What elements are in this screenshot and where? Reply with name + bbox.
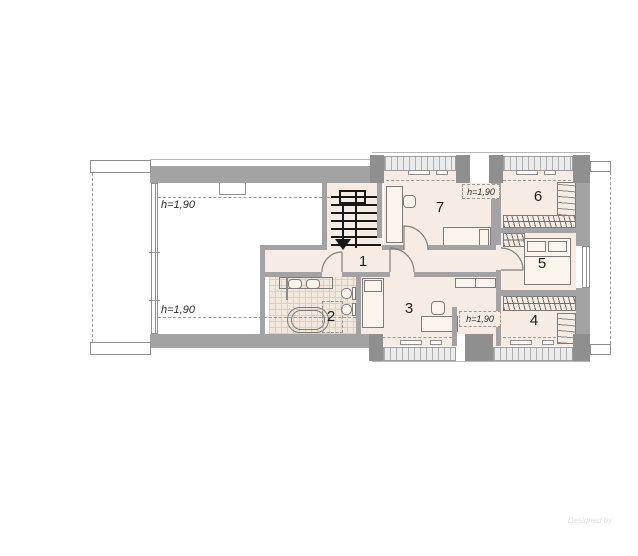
- dormer-recess-bottom: [456, 334, 465, 361]
- clothes-rail-room-5: [503, 233, 525, 247]
- chair-room-7: [403, 195, 416, 208]
- pillow-room-7: [479, 229, 489, 246]
- height-mark-dormer-bottom: h=1,90: [459, 311, 501, 327]
- wall-top-left-wing: [150, 166, 372, 183]
- wall-hallway-top-left: [260, 245, 327, 250]
- height-line-open-top: [158, 197, 322, 198]
- roof-edge-top-right: [372, 152, 590, 153]
- sill-bottom-1: [400, 340, 422, 345]
- roof-window-bottom-1: [383, 347, 456, 361]
- sill-bottom-3: [510, 340, 532, 345]
- pillow-left-room-5: [527, 241, 546, 252]
- wall-room-3-niche: [452, 307, 457, 346]
- window-wall-left: [151, 183, 158, 334]
- wall-room-5-room-4: [501, 290, 576, 296]
- chair-room-3: [431, 301, 445, 315]
- pillar-bottom-1: [369, 334, 383, 361]
- wall-top-right-corner: [573, 155, 590, 183]
- eave-bottom-left: [90, 342, 151, 355]
- pillow-room-3: [364, 280, 382, 292]
- wall-open-stairwell: [322, 183, 327, 250]
- sink-left: [288, 279, 302, 289]
- wall-right-upper: [576, 183, 590, 246]
- wall-room-7-hall-b: [428, 245, 496, 250]
- roof-edge-bottom-right: [372, 361, 590, 362]
- pillar-top-2: [456, 155, 470, 183]
- room-label-6: 6: [531, 188, 545, 205]
- wall-hall-bath-a: [265, 272, 322, 277]
- room-label-1: 1: [356, 253, 370, 270]
- height-mark-dormer-top-label: h=1,90: [467, 187, 495, 197]
- stair-arrow-head-icon: [335, 239, 351, 250]
- watermark-credit: Designed by: [545, 516, 635, 525]
- wall-bath-room-3: [356, 277, 361, 334]
- sill-bottom-4: [542, 340, 554, 345]
- sill-top-4: [544, 170, 556, 175]
- eave-bottom-right: [590, 344, 611, 355]
- room-label-3: 3: [402, 300, 416, 317]
- room-label-4: 4: [527, 312, 541, 329]
- sill-bottom-2: [430, 340, 442, 345]
- pillar-top-3: [489, 155, 503, 183]
- stair-turn-rail: [339, 190, 366, 204]
- wall-hallway-left: [260, 245, 265, 334]
- room-label-2: 2: [324, 308, 338, 325]
- height-mark-dormer-top: h=1,90: [462, 184, 500, 199]
- chimney-mark: [219, 183, 246, 195]
- room-label-7: 7: [433, 199, 447, 216]
- mullion-tick-2: [149, 300, 160, 301]
- roof-window-top-2: [503, 156, 573, 171]
- wall-room-7-hall-a: [382, 245, 404, 250]
- wall-room-6-room-5: [501, 228, 576, 233]
- dormer-recess-top: [470, 155, 489, 183]
- wall-bottom-left-wing: [150, 334, 372, 348]
- roof-window-bottom-2: [493, 347, 573, 361]
- wall-hall-room-3: [414, 272, 501, 277]
- watermark: Designed by: [545, 516, 635, 525]
- pillar-bottom-2: [465, 334, 493, 361]
- sill-top-1: [408, 170, 430, 175]
- toilet-bowl: [341, 288, 352, 299]
- sill-top-2: [436, 170, 448, 175]
- height-mark-dormer-bottom-label: h=1,90: [466, 314, 494, 324]
- shelf-room-3: [455, 278, 496, 288]
- bath-partition: [286, 277, 288, 300]
- roof-edge-top-left: [150, 159, 372, 160]
- height-label-open-bottom: h=1,90: [161, 304, 195, 316]
- sill-top-3: [516, 170, 538, 175]
- sink-right: [306, 279, 320, 289]
- wall-hall-bath-b: [342, 272, 390, 277]
- eave-top-left: [90, 160, 151, 173]
- roof-outline-right: [610, 172, 611, 344]
- floor-plan: h=1,90 h=1,90 h=1,90 h=1,90 1 2 3 4 5 6 …: [0, 0, 638, 556]
- pillow-right-room-5: [548, 241, 567, 252]
- desk-room-7: [386, 186, 403, 243]
- room-label-5: 5: [535, 255, 549, 272]
- height-line-room-6: [503, 180, 576, 181]
- bathtub-inner: [291, 310, 325, 330]
- eave-top-right: [590, 161, 611, 172]
- clothes-rail-room-6: [503, 215, 576, 228]
- roof-window-top-1: [384, 156, 456, 171]
- roof-outline-left: [92, 173, 93, 342]
- stair-arrow-stem: [342, 204, 344, 240]
- clothes-rail-room-4: [503, 296, 576, 311]
- window-room-5: [582, 246, 590, 288]
- height-label-open-top: h=1,90: [161, 199, 195, 211]
- wall-bottom-right-corner: [573, 334, 590, 361]
- pillar-top-1: [370, 155, 384, 183]
- wall-center-right: [496, 270, 501, 346]
- wall-stairwell-room-7: [377, 183, 382, 238]
- mullion-tick-1: [149, 252, 160, 253]
